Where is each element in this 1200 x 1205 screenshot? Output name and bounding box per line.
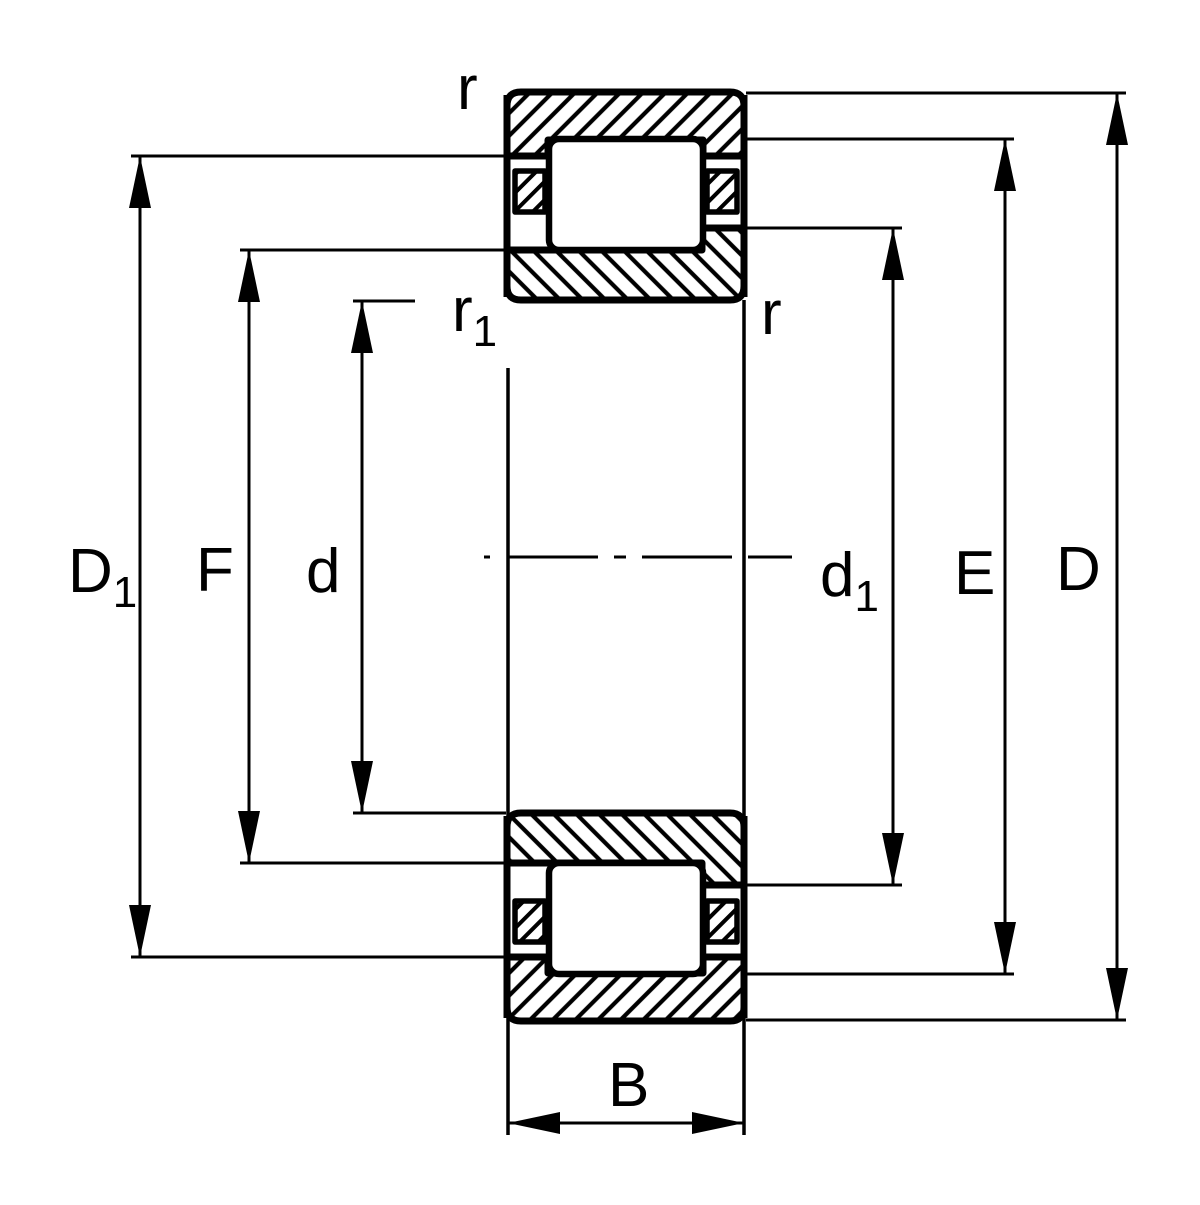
cage-bottom-right <box>707 901 737 942</box>
arrowhead-up-icon <box>238 250 260 302</box>
arrowhead-up-icon <box>1106 93 1128 145</box>
dimension-D: D <box>1056 93 1128 1020</box>
label-r1: r1 <box>452 276 497 356</box>
bearing-section-top <box>507 92 744 300</box>
cage-top-right <box>707 171 737 212</box>
dimension-E: E <box>954 139 1016 974</box>
bearing-dimension-drawing: D1 F d d1 E D B r <box>0 0 1200 1200</box>
dimension-F: F <box>196 250 260 863</box>
arrowhead-down-icon <box>1106 968 1128 1020</box>
label-r-right: r <box>761 279 782 348</box>
arrowhead-left-icon <box>508 1112 560 1134</box>
arrowhead-right-icon <box>692 1112 744 1134</box>
arrowhead-up-icon <box>994 139 1016 191</box>
label-d: d <box>306 537 340 606</box>
dimension-D1: D1 <box>68 156 151 957</box>
bearing-cross-section-svg: D1 F d d1 E D B r <box>0 0 1200 1200</box>
label-E: E <box>954 539 995 608</box>
label-r-top: r <box>457 54 478 123</box>
roller-top <box>549 139 703 250</box>
dimension-d: d <box>306 301 373 813</box>
label-d1: d1 <box>820 541 879 621</box>
bearing-section-bottom <box>507 813 744 1021</box>
arrowhead-down-icon <box>882 833 904 885</box>
arrowhead-down-icon <box>129 905 151 957</box>
dimension-d1: d1 <box>820 228 904 885</box>
label-B: B <box>608 1051 649 1120</box>
dimension-B: B <box>508 1051 744 1134</box>
arrowhead-down-icon <box>238 811 260 863</box>
arrowhead-down-icon <box>994 922 1016 974</box>
label-F: F <box>196 536 234 605</box>
arrowhead-up-icon <box>882 228 904 280</box>
cage-top-left <box>515 171 545 212</box>
cage-bottom-left <box>515 901 545 942</box>
arrowhead-down-icon <box>351 761 373 813</box>
roller-bottom <box>549 863 703 974</box>
arrowhead-up-icon <box>129 156 151 208</box>
label-D1: D1 <box>68 537 137 617</box>
arrowhead-up-icon <box>351 301 373 353</box>
label-D: D <box>1056 535 1101 604</box>
